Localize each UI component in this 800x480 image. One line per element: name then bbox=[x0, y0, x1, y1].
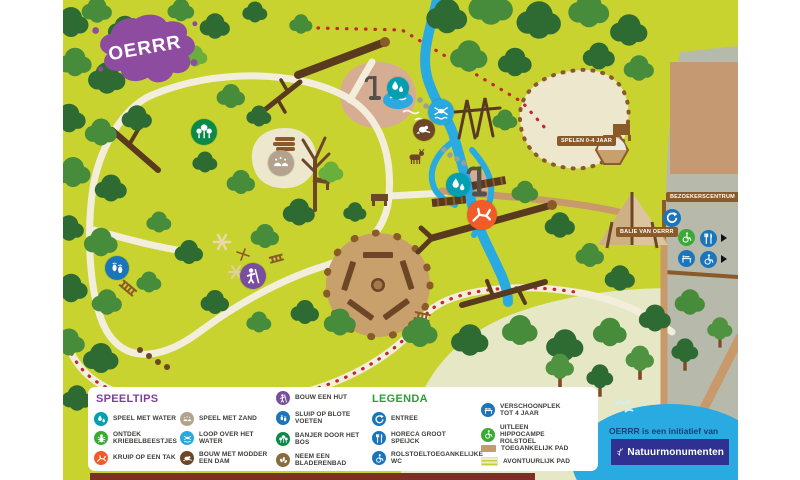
legend-item: SPEEL MET ZAND bbox=[180, 412, 273, 426]
accessible-path-swatch bbox=[481, 445, 496, 452]
branch-icon bbox=[94, 451, 108, 465]
sand-icon bbox=[180, 412, 194, 426]
legend-item: SLUIP OP BLOTE VOETEN bbox=[276, 411, 369, 425]
legend-item: BOUW MET MODDER EEN DAM bbox=[180, 451, 273, 465]
legend-item: ROLSTOELTOEGANKELIJKE WC bbox=[372, 451, 465, 465]
entrance-icon bbox=[372, 412, 386, 426]
changing-table-icon bbox=[481, 403, 495, 417]
legend-item: UITLEEN HIPPOCAMPE ROLSTOEL bbox=[481, 424, 574, 445]
horeca-cutlery-icon bbox=[700, 230, 717, 247]
legend-item: TOEGANKELIJK PAD bbox=[481, 445, 575, 452]
sign-balie-van-oerrr: BALIE VAN OERRR bbox=[616, 227, 678, 237]
water-drops-icon bbox=[94, 412, 108, 426]
wheelchair-wc-icon bbox=[700, 251, 717, 268]
water-drops-icon bbox=[387, 77, 409, 99]
bare-feet-icon bbox=[105, 256, 129, 280]
arrow-icon bbox=[721, 234, 727, 242]
legend-item: BANJER DOOR HET BOS bbox=[276, 432, 369, 446]
sand-play-icon bbox=[268, 150, 294, 176]
legend-item: ONTDEK KRIEBELBEESTJES bbox=[94, 431, 187, 445]
forest-walk-icon bbox=[191, 119, 217, 145]
sign-spelen-0-4: SPELEN 0-4 JAAR bbox=[557, 136, 616, 146]
natuurmonumenten-mark-icon bbox=[616, 444, 623, 460]
entrance-icon bbox=[663, 209, 681, 227]
legend-panel: SPEELTIPS SPEEL MET WATER ONTDEK KRIEBEL… bbox=[88, 387, 598, 471]
oerrr-logo[interactable]: OERRR bbox=[85, 12, 203, 86]
wheelchair-icon bbox=[372, 451, 386, 465]
legend-item: NEEM EEN BLADERENBAD bbox=[276, 453, 369, 467]
bug-icon bbox=[94, 431, 108, 445]
legend-item: AVONTUURLIJK PAD bbox=[481, 457, 577, 466]
park-map-page: SPELEN 0-4 JAAR BEZOEKERSCENTRUM BALIE V… bbox=[0, 0, 800, 480]
legenda-title: LEGENDA bbox=[372, 393, 428, 405]
legend-item: KRUIP OP EEN TAK bbox=[94, 451, 187, 465]
changing-table-icon bbox=[678, 250, 695, 267]
legend-item: ENTREE bbox=[372, 412, 465, 426]
arrow-icon bbox=[721, 255, 727, 263]
bare-feet-icon bbox=[276, 411, 290, 425]
cutlery-icon bbox=[372, 431, 386, 445]
water-drops-icon bbox=[446, 173, 470, 197]
adventure-path-swatch bbox=[481, 457, 498, 466]
speeltips-title: SPEELTIPS bbox=[96, 393, 158, 405]
legend-item: SPEEL MET WATER bbox=[94, 412, 187, 426]
wheelchair-icon bbox=[481, 428, 495, 442]
branch-climb-icon bbox=[467, 200, 497, 230]
legend-item: BOUW EEN HUT bbox=[276, 391, 369, 405]
waterstrider-icon bbox=[180, 431, 194, 445]
brand-name: Natuurmonumenten bbox=[627, 447, 724, 458]
hut-builder-icon bbox=[240, 263, 266, 289]
attribution-text: OERRR is een initiatief van bbox=[609, 426, 718, 436]
legend-item: HORECA GROOT SPEIJCK bbox=[372, 431, 465, 445]
hut-builder-icon bbox=[276, 391, 290, 405]
beaver-icon bbox=[180, 451, 194, 465]
legend-item: VERSCHOONPLEK TOT 4 JAAR bbox=[481, 403, 574, 417]
natuurmonumenten-logo-button[interactable]: Natuurmonumenten bbox=[611, 439, 729, 465]
trees-icon bbox=[276, 432, 290, 446]
sign-bezoekerscentrum: BEZOEKERSCENTRUM bbox=[666, 192, 738, 202]
leaves-icon bbox=[276, 453, 290, 467]
hippocampe-wheelchair-icon bbox=[678, 229, 695, 246]
legend-item: LOOP OVER HET WATER bbox=[180, 431, 273, 445]
beaver-dam-icon bbox=[413, 119, 435, 141]
